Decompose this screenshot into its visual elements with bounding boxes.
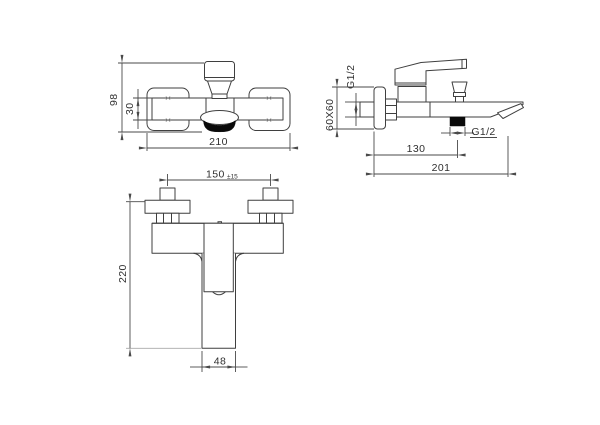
dimension-150: 150 ±15: [168, 169, 271, 187]
dim-150-label: 150: [206, 169, 225, 181]
dim-g12-outlet-label: G1/2: [471, 126, 495, 138]
diverter-knob: [452, 82, 467, 102]
shower-outlet: [450, 117, 465, 126]
hex-nut: [386, 99, 397, 120]
dim-201-label: 201: [432, 162, 451, 174]
dim-60x60-label: 60X60: [324, 99, 336, 131]
handle-front: [205, 62, 235, 99]
dimension-wall-thread: G1/2: [345, 65, 360, 126]
dimension-48: 48: [190, 351, 248, 372]
dimension-130: 130: [374, 132, 458, 159]
handle-side: [395, 59, 467, 85]
dim-210-label: 210: [209, 136, 228, 148]
dim-220-label: 220: [117, 264, 129, 283]
wall-flange: [374, 87, 386, 129]
dim-98-label: 98: [108, 94, 120, 106]
cartridge-neck: [398, 87, 426, 103]
dimension-201: 201: [374, 136, 508, 177]
eccentric-left: [145, 188, 190, 223]
spout-front: [201, 111, 239, 132]
dim-30-label: 30: [124, 103, 136, 115]
dim-150-tolerance: ±15: [227, 174, 238, 181]
faucet-dimension-drawing: 98 30 210: [0, 0, 600, 425]
handle-plan: [204, 223, 233, 291]
side-view: G1/2 60X60 G1/2 130: [324, 59, 524, 177]
dim-130-label: 130: [407, 143, 426, 155]
eccentric-right: [248, 188, 293, 223]
plan-view: 150 ±15 220 48: [117, 169, 293, 373]
front-view: 98 30 210: [108, 62, 290, 152]
dim-g12-wall-label: G1/2: [345, 65, 357, 89]
dimension-210: 210: [147, 133, 290, 151]
dimension-outlet-thread: G1/2: [441, 126, 497, 138]
dim-48-label: 48: [214, 356, 226, 368]
wall-stub: [360, 102, 374, 117]
